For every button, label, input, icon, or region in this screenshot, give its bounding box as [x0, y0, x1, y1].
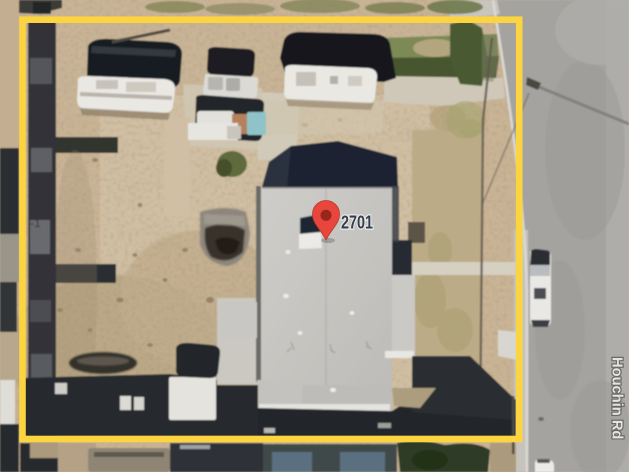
- svg-text:2701: 2701: [341, 213, 373, 233]
- svg-text:-1: -1: [30, 216, 41, 230]
- svg-text:Houchin Rd: Houchin Rd: [609, 357, 625, 439]
